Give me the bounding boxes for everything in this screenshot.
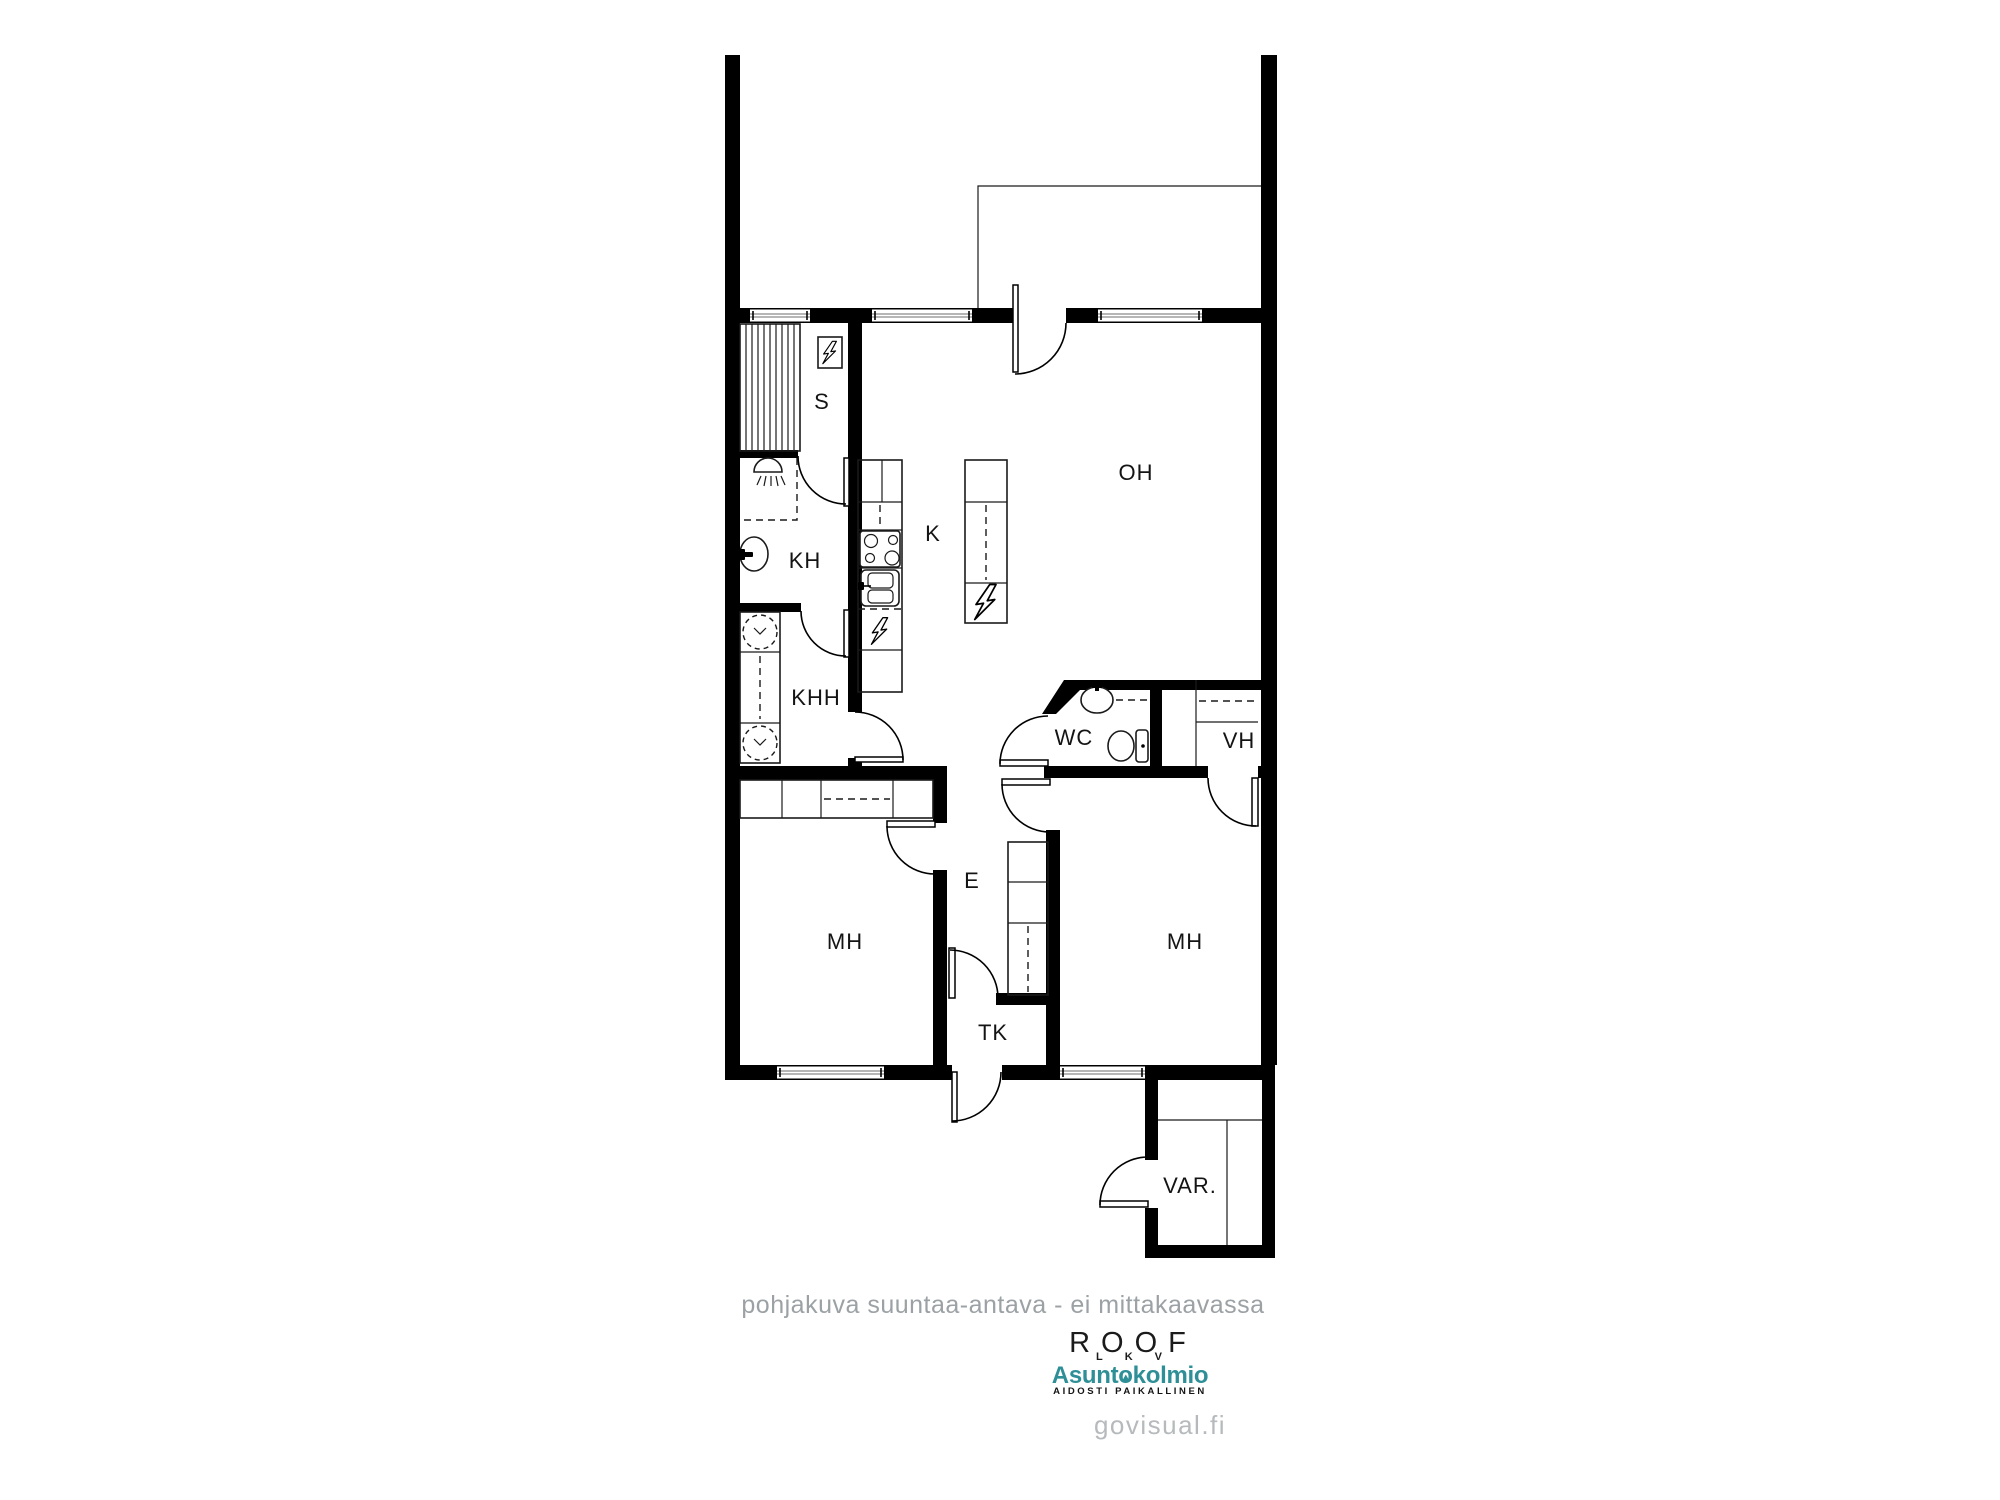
- bedroom-right-door: [1002, 779, 1050, 832]
- sauna-heater-icon: [818, 337, 842, 368]
- window-living: [1098, 308, 1202, 323]
- window-bedroom-left: [777, 1065, 884, 1080]
- window-kitchen: [872, 308, 972, 323]
- room-label-wc: WC: [1055, 725, 1094, 750]
- floor-plan-drawing: S KH KHH K OH WC VH MH E MH TK VAR.: [0, 0, 2000, 1500]
- sauna-benches-icon: [740, 324, 800, 451]
- room-label-vh: VH: [1223, 728, 1256, 753]
- bedroom-left-closet: [740, 780, 933, 818]
- room-label-utility: KHH: [791, 685, 840, 710]
- hall-closet: [1008, 842, 1048, 995]
- bathroom-utility-door: [801, 610, 849, 657]
- entrance-door: [1013, 285, 1066, 374]
- sauna-door: [798, 456, 849, 506]
- vestibule-exterior-door: [952, 1072, 1001, 1122]
- room-label-kitchen: K: [925, 521, 941, 546]
- kitchen-sink-icon: [858, 570, 899, 606]
- brand-tagline: AIDOSTI PAIKALLINEN: [1053, 1386, 1207, 1397]
- toilet-icon: [1108, 730, 1148, 762]
- floor-plan-page: S KH KHH K OH WC VH MH E MH TK VAR. pohj…: [0, 0, 2000, 1500]
- room-label-storage: VAR.: [1163, 1173, 1217, 1198]
- wc-door: [1000, 716, 1048, 766]
- disclaimer-text: pohjakuva suuntaa-antava - ei mittakaava…: [741, 1291, 1264, 1320]
- brand-part1: Asunt: [1052, 1362, 1119, 1389]
- washing-machine-icon: [743, 615, 777, 649]
- storage-door: [1100, 1157, 1148, 1207]
- kitchen-island: [965, 460, 1007, 623]
- room-label-bathroom: KH: [789, 548, 822, 573]
- room-label-sauna: S: [814, 389, 830, 414]
- washbasin-icon: [737, 537, 768, 571]
- watermark-text: govisual.fi: [1094, 1410, 1226, 1441]
- window-bedroom-right: [1060, 1065, 1145, 1080]
- brand-part3: kolmio: [1133, 1362, 1209, 1389]
- window-sauna: [750, 308, 810, 323]
- closet-vh-door: [1208, 778, 1258, 826]
- room-label-bedroom-right: MH: [1167, 929, 1203, 954]
- terrace-outline: [978, 186, 1261, 308]
- room-label-vestibule: TK: [978, 1020, 1008, 1045]
- stove-icon: [860, 531, 900, 567]
- utility-hall-door: [855, 712, 903, 762]
- shower-icon: [754, 458, 785, 486]
- dishwasher-icon: [871, 618, 887, 645]
- bedroom-left-door: [887, 821, 935, 874]
- hall-vestibule-door: [949, 948, 998, 998]
- vh-shelves: [1196, 680, 1258, 766]
- room-label-bedroom-left: MH: [827, 929, 863, 954]
- room-label-hall: E: [964, 868, 980, 893]
- dryer-icon: [743, 726, 777, 760]
- room-label-living: OH: [1119, 460, 1154, 485]
